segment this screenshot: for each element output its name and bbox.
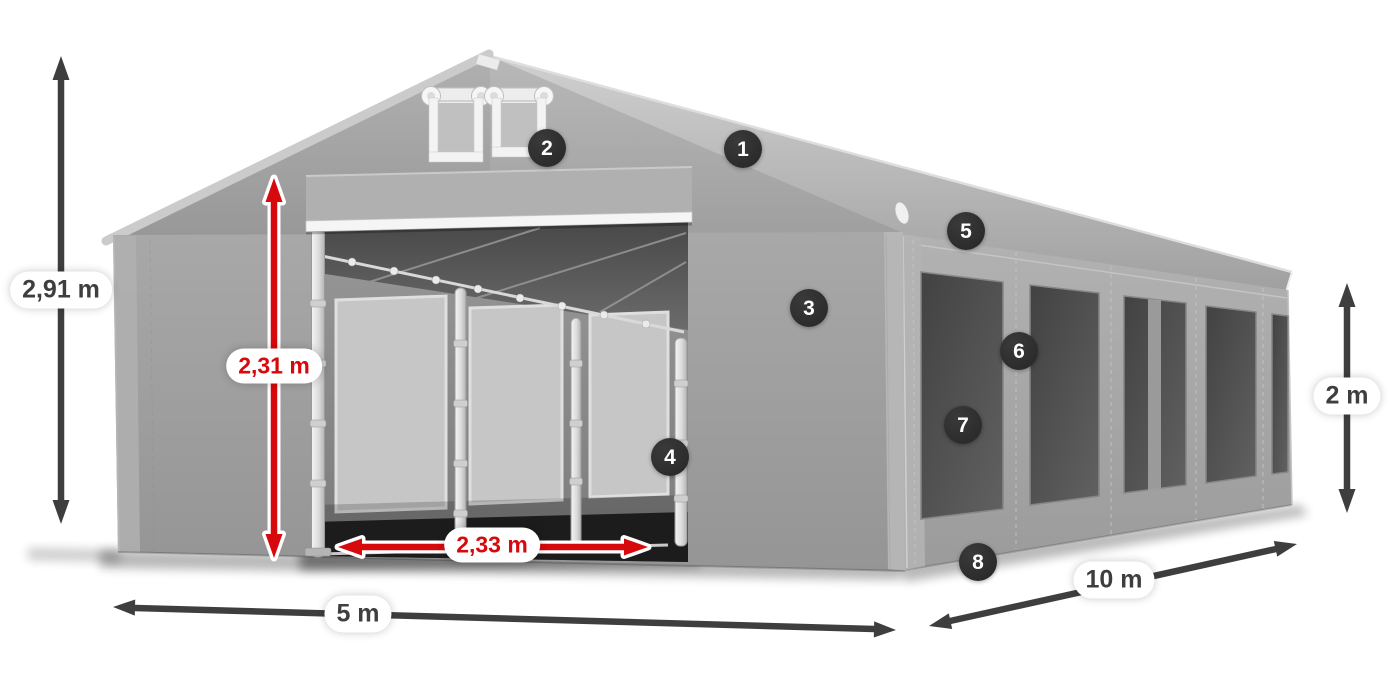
dimension-label-side-height: 2 m xyxy=(1313,378,1380,415)
side-window-5 xyxy=(1272,314,1288,474)
tent-illustration xyxy=(0,0,1400,700)
front-left-corner-pad xyxy=(113,235,140,553)
side-window-2 xyxy=(1030,285,1099,505)
callout-6-side-mullion[interactable]: 6 xyxy=(1000,332,1038,370)
callout-4-entrance-pole[interactable]: 4 xyxy=(651,438,689,476)
tent-entrance xyxy=(305,218,688,562)
interior-mesh-windows xyxy=(336,296,668,512)
side-window-1 xyxy=(921,272,1003,519)
dimension-label-door-width: 2,33 m xyxy=(444,528,540,563)
side-window-4 xyxy=(1206,306,1256,483)
dimension-label-door-height: 2,31 m xyxy=(226,349,322,384)
arrow-front-width xyxy=(113,600,896,638)
dimension-label-front-width: 5 m xyxy=(324,596,391,633)
callout-1-roof[interactable]: 1 xyxy=(724,130,762,168)
tent-dimension-diagram: 2,91 m 2,31 m 2,33 m 5 m 10 m 2 m 1 2 3 … xyxy=(0,0,1400,700)
callout-5-eave[interactable]: 5 xyxy=(947,212,985,250)
callout-7-side-window[interactable]: 7 xyxy=(944,406,982,444)
callout-2-gable-window[interactable]: 2 xyxy=(528,129,566,167)
dimension-label-side-length: 10 m xyxy=(1074,562,1155,599)
callout-3-front-wall[interactable]: 3 xyxy=(790,289,828,327)
gable-mesh-left xyxy=(438,103,474,152)
dimension-label-total-height: 2,91 m xyxy=(10,272,112,309)
callout-8-groundbar[interactable]: 8 xyxy=(959,543,997,581)
gable-roller-blind-left xyxy=(422,87,491,163)
side-door-slider-edge xyxy=(1148,299,1161,491)
